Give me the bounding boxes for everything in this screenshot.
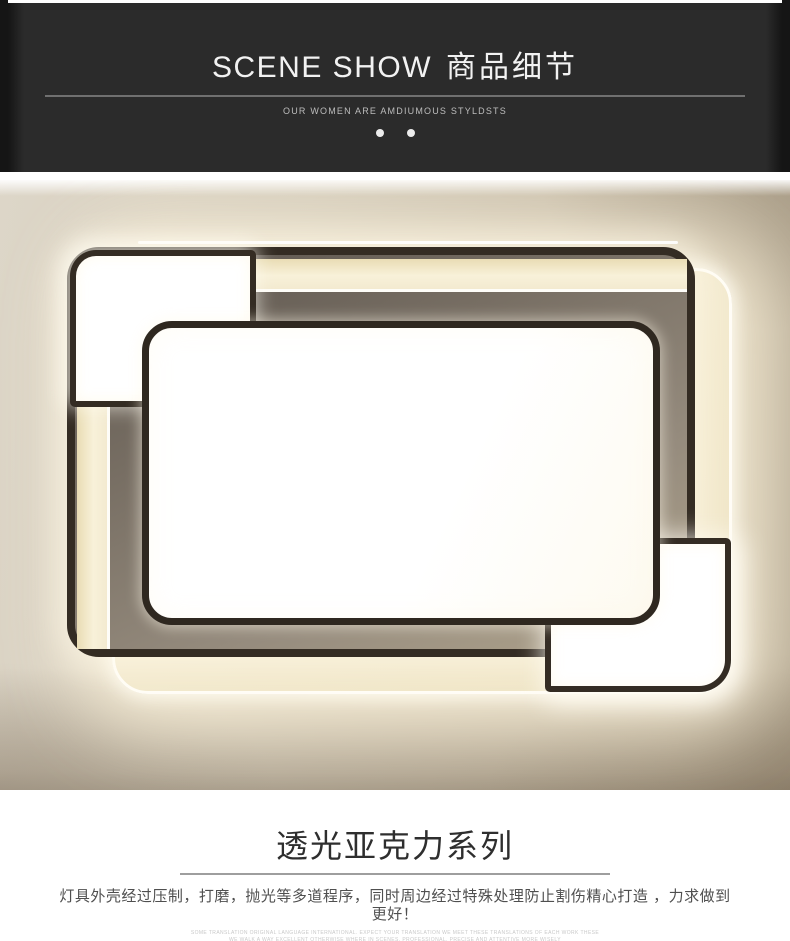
caption-section: 透光亚克力系列 灯具外壳经过压制，打磨，抛光等多道程序，同时周边经过特殊处理防止… xyxy=(0,790,790,941)
carousel-dots xyxy=(0,129,790,137)
lamp-center-panel xyxy=(142,321,660,625)
series-divider xyxy=(180,873,610,875)
lamp-left-light-bar xyxy=(77,403,110,649)
banner-tagline: OUR WOMEN ARE AMDIUMOUS STYLDSTS xyxy=(0,106,790,116)
fine-print-line-2: WE WALK A WAY EXCELLENT OTHERWISE WHERE … xyxy=(75,937,715,941)
banner-title-en: SCENE SHOW xyxy=(212,51,432,84)
product-photo xyxy=(0,180,790,790)
banner-divider xyxy=(45,95,745,97)
lamp-top-light-bar xyxy=(253,259,687,292)
scene-show-banner: SCENE SHOW商品细节 OUR WOMEN ARE AMDIUMOUS S… xyxy=(0,0,790,172)
carousel-dot xyxy=(376,129,384,137)
fine-print-line-1: SOME TRANSLATION ORIGINAL LANGUAGE INTER… xyxy=(75,930,715,937)
lamp-top-edge-highlight xyxy=(138,241,678,244)
carousel-dot xyxy=(407,129,415,137)
banner-title-zh: 商品细节 xyxy=(446,51,578,84)
series-title: 透光亚克力系列 xyxy=(0,790,790,864)
series-description: 灯具外壳经过压制，打磨，抛光等多道程序，同时周边经过特殊处理防止割伤精心打造 ，… xyxy=(55,888,735,924)
product-detail-page: SCENE SHOW商品细节 OUR WOMEN ARE AMDIUMOUS S… xyxy=(0,0,790,941)
banner-title: SCENE SHOW商品细节 xyxy=(0,0,790,84)
